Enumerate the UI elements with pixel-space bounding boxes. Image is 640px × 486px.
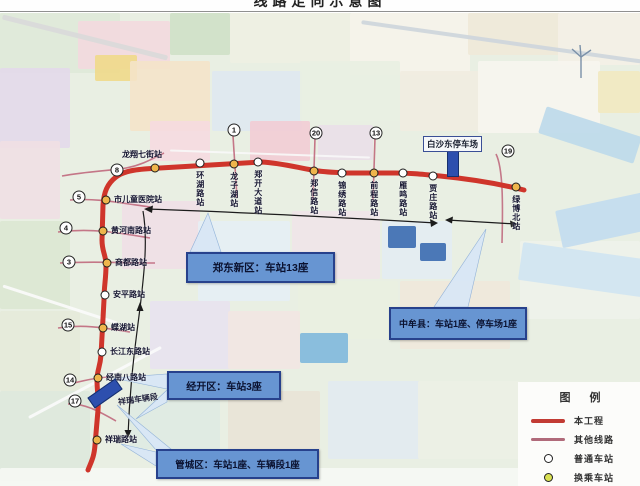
station-marker — [399, 169, 408, 178]
station-marker — [230, 160, 239, 169]
callout-zhongmou-text: 中牟县：车站1座、停车场1座 — [399, 317, 517, 330]
landuse-patch — [300, 333, 348, 363]
legend-swatch-circle — [530, 473, 566, 482]
station-label: 商都路站 — [115, 259, 147, 268]
landuse-patch — [555, 192, 640, 248]
station-label: 龙翔七街站 — [122, 151, 162, 160]
station-label: 郑信路站 — [309, 179, 318, 215]
landuse-patch — [400, 71, 480, 131]
callout-zhengdong-text: 郑东新区：车站13座 — [213, 260, 309, 275]
line-number-badge: 5 — [73, 191, 86, 204]
legend-swatch-line-thick — [530, 419, 566, 423]
station-label: 贾庄路站 — [428, 184, 437, 220]
station-label: 龙子湖站 — [229, 172, 238, 208]
line-number-badge: 15 — [62, 319, 75, 332]
station-marker — [99, 227, 108, 236]
extent-arrow-zhongmou — [447, 220, 516, 224]
station-label: 锦绣路站 — [337, 181, 346, 217]
line-number-badge: 1 — [228, 124, 241, 137]
station-label: 长江东路站 — [110, 348, 150, 357]
callout-zhongmou: 中牟县：车站1座、停车场1座 — [389, 307, 527, 340]
callout-jingkai-text: 经开区：车站3座 — [186, 378, 262, 393]
legend-label: 本工程 — [574, 414, 604, 427]
legend-swatch-circle — [530, 454, 566, 463]
station-marker — [310, 167, 319, 176]
landuse-patch — [0, 141, 60, 219]
callout-guancheng: 管城区：车站1座、车辆段1座 — [156, 449, 319, 479]
station-label: 雁鸣路站 — [398, 181, 407, 217]
parking-label: 白沙东停车场 — [423, 136, 482, 152]
landuse-patch — [298, 281, 398, 339]
legend-swatch-shape — [544, 473, 553, 482]
station-marker — [370, 169, 379, 178]
landuse-patch — [0, 68, 70, 148]
legend-swatch-shape — [544, 454, 553, 463]
station-marker — [93, 436, 102, 445]
legend-label: 普通车站 — [574, 452, 614, 465]
legend-item: 普通车站 — [530, 449, 632, 468]
figure-title-text: 线路走向示意图 — [254, 0, 387, 11]
legend-swatch-line-thin — [530, 438, 566, 441]
legend-label: 换乘车站 — [574, 471, 614, 484]
station-marker — [254, 158, 263, 167]
landuse-patch — [228, 311, 300, 369]
station-marker — [98, 348, 107, 357]
line-number-badge: 17 — [69, 395, 82, 408]
line-number-badge: 19 — [502, 145, 515, 158]
station-label: 祥瑞路站 — [105, 436, 137, 445]
landuse-patch — [418, 381, 520, 459]
station-label: 蝶湖站 — [111, 324, 135, 333]
station-label: 前程路站 — [369, 181, 378, 217]
station-marker — [101, 291, 110, 300]
landuse-patch — [420, 243, 446, 261]
station-label: 安平路站 — [113, 291, 145, 300]
legend-swatch-shape — [531, 438, 565, 441]
station-label: 市儿童医院站 — [114, 196, 162, 205]
legend-header: 图 例 — [536, 389, 632, 405]
station-marker — [196, 159, 205, 168]
figure-title-cropped: 线路走向示意图 — [0, 0, 640, 12]
station-marker — [94, 374, 103, 383]
legend-item: 换乘车站 — [530, 468, 632, 486]
station-label: 郑开大道站 — [253, 170, 262, 215]
landuse-patch — [598, 71, 640, 113]
landuse-patch — [300, 61, 400, 121]
line-number-badge: 3 — [63, 256, 76, 269]
parking-label-text: 白沙东停车场 — [427, 139, 478, 149]
city-planning-map: 龙翔七街站环湖路站龙子湖站郑开大道站郑信路站锦绣路站前程路站雁鸣路站贾庄路站绿博… — [0, 13, 640, 486]
station-marker — [338, 169, 347, 178]
route-map-figure: 线路走向示意图 — [0, 0, 640, 486]
line-number-badge: 13 — [370, 127, 383, 140]
landuse-patch — [150, 301, 230, 369]
landuse-patch — [328, 381, 420, 459]
legend-swatch-shape — [531, 419, 565, 423]
legend-label: 其他线路 — [574, 433, 614, 446]
landuse-patch — [170, 13, 230, 55]
legend-panel: 图 例 本工程其他线路普通车站换乘车站 — [518, 382, 640, 486]
station-marker — [512, 183, 521, 192]
line-number-badge: 14 — [64, 374, 77, 387]
station-marker — [103, 259, 112, 268]
line-number-badge: 20 — [310, 127, 323, 140]
callout-jingkai: 经开区：车站3座 — [167, 371, 281, 400]
line-number-badge: 8 — [111, 164, 124, 177]
landuse-patch — [388, 226, 416, 248]
station-marker — [429, 172, 438, 181]
legend-item: 其他线路 — [530, 430, 632, 449]
legend-item: 本工程 — [530, 411, 632, 430]
station-label: 黄河南路站 — [111, 227, 151, 236]
station-marker — [102, 196, 111, 205]
legend-items: 本工程其他线路普通车站换乘车站 — [530, 411, 632, 486]
line-number-badge: 4 — [60, 222, 73, 235]
parking-lot-rect — [447, 151, 459, 177]
station-marker — [99, 324, 108, 333]
station-label: 环湖路站 — [195, 171, 204, 207]
station-marker — [151, 164, 160, 173]
landuse-patch — [230, 13, 350, 63]
callout-guancheng-text: 管城区：车站1座、车辆段1座 — [175, 457, 300, 471]
other-line — [496, 154, 502, 243]
station-label: 绿博北站 — [511, 195, 520, 231]
callout-zhengdong: 郑东新区：车站13座 — [186, 252, 335, 283]
